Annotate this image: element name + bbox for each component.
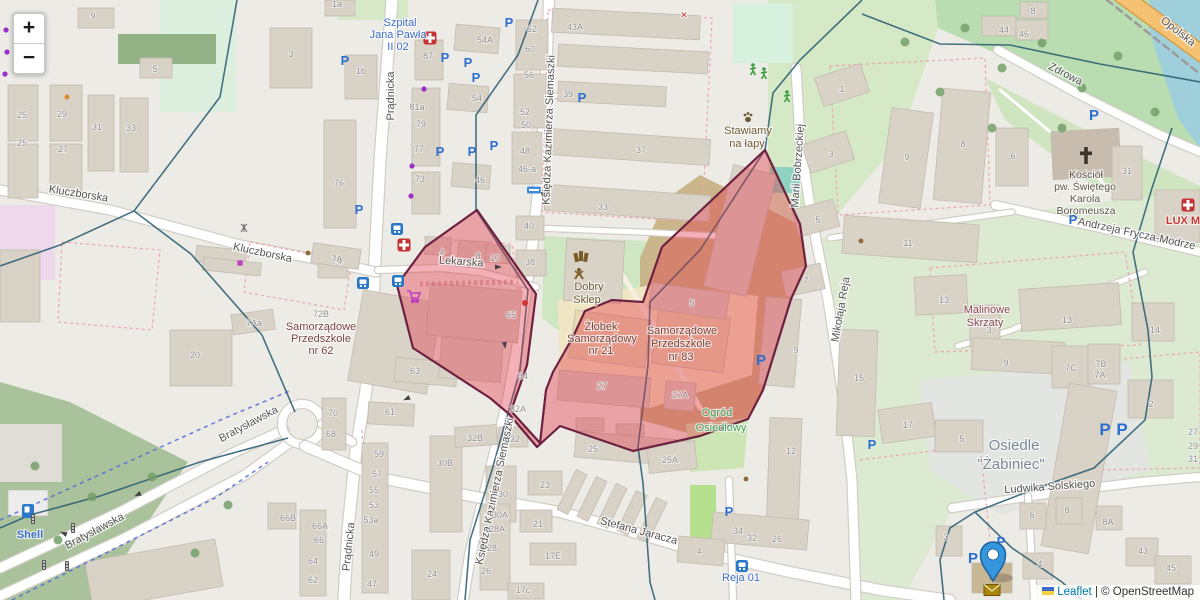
house-number: 7Aa: [246, 318, 262, 328]
red-icon: [522, 300, 528, 306]
house-number: 50: [521, 120, 531, 130]
P-icon: P: [725, 504, 734, 519]
house-number: 49: [369, 549, 379, 559]
house-number: 68: [326, 429, 336, 439]
poi-label: Żłobek: [584, 320, 618, 333]
house-number: 53a: [363, 515, 378, 525]
P-icon: P: [868, 437, 877, 452]
purple-icon: [3, 27, 8, 32]
house-number: 7: [803, 276, 808, 286]
house-number: 44: [999, 25, 1009, 35]
svg-text:P: P: [1116, 420, 1127, 439]
svg-text:P: P: [355, 202, 364, 217]
poi-label: Osiedlowy: [696, 422, 747, 434]
house-number: 13: [939, 295, 949, 305]
house-number: 3: [828, 149, 833, 159]
poi-label: nr 62: [308, 345, 333, 357]
house-number: 9: [904, 152, 909, 162]
house-number: 12: [786, 446, 796, 456]
house-number: 7A: [331, 254, 342, 264]
house-number: 43: [1138, 546, 1148, 556]
house-number: 8: [960, 139, 965, 149]
house-number: 63: [410, 366, 420, 376]
house-number: 34: [518, 371, 528, 381]
P-icon: P: [355, 202, 364, 217]
P-icon: P: [578, 90, 587, 105]
house-number: 9: [1003, 358, 1008, 368]
svg-text:P: P: [505, 15, 514, 30]
house-number: 9: [793, 345, 798, 355]
purple-icon: [408, 193, 413, 198]
medical-icon: [398, 239, 411, 252]
svg-text:P: P: [468, 144, 477, 159]
house-number: 27: [597, 381, 607, 391]
house-number: 57: [372, 469, 382, 479]
blue-tag-icon: [527, 187, 541, 194]
poi-label: na łapy: [729, 138, 765, 150]
poi-label: Malinowe: [964, 304, 1010, 316]
house-number: 54: [472, 93, 482, 103]
house-number: 24: [427, 569, 437, 579]
svg-text:P: P: [1099, 420, 1110, 439]
house-number: 54A: [477, 35, 493, 45]
house-number: 46-a: [518, 164, 536, 174]
poi-label: ✕: [680, 10, 688, 20]
house-number: 26: [481, 566, 491, 576]
poi-label: Samorządowy: [567, 333, 637, 345]
house-number: 70: [328, 408, 338, 418]
house-number: 6: [1010, 151, 1015, 161]
house-number: 28: [487, 543, 497, 553]
P-icon: P: [756, 352, 766, 369]
house-number: 40: [524, 221, 534, 231]
house-number: 8: [1064, 505, 1069, 515]
house-number: 8A: [1102, 517, 1113, 527]
P-icon: P: [1116, 420, 1127, 439]
tl-icon: [71, 523, 75, 533]
house-number: 9: [90, 11, 95, 21]
envelope-icon: [984, 585, 1000, 596]
house-number: 34: [733, 526, 743, 536]
house-number: 52: [520, 107, 530, 117]
house-number: 4: [439, 247, 444, 257]
svg-text:P: P: [472, 70, 481, 85]
bus-icon: [736, 560, 748, 572]
house-number: 28A: [489, 524, 505, 534]
house-number: 15: [854, 373, 864, 383]
house-number: 73: [415, 174, 425, 184]
svg-text:P: P: [490, 138, 499, 153]
zoom-in-button[interactable]: +: [14, 14, 44, 44]
house-number: 5: [959, 434, 964, 444]
osm-credit: © OpenStreetMap: [1101, 586, 1194, 598]
svg-text:P: P: [968, 550, 978, 567]
medical-icon: [1182, 199, 1195, 212]
house-number: 5: [815, 215, 820, 225]
P-icon: P: [472, 70, 481, 85]
street-label: Prądnicka: [385, 71, 397, 121]
house-number: 6: [1029, 510, 1034, 520]
poi-label: Samorządowe: [647, 325, 717, 337]
house-number: 39: [563, 89, 573, 99]
house-number: 8: [1030, 6, 1035, 16]
purple-icon: [4, 49, 9, 54]
house-number: 5: [689, 298, 694, 308]
house-number: 76: [334, 178, 344, 188]
house-number: 13: [1062, 315, 1072, 325]
poi-label: Skrzaty: [967, 317, 1004, 329]
poi-label: Przedszkole: [651, 338, 711, 350]
house-number: 1b: [356, 66, 366, 76]
house-number: 66A: [312, 521, 328, 531]
house-number: 23: [540, 480, 550, 490]
house-number: 27A: [672, 390, 688, 400]
P-icon: P: [436, 144, 445, 159]
svg-text:P: P: [868, 437, 877, 452]
house-number: 60: [525, 44, 535, 54]
house-number: 30A: [492, 510, 508, 520]
poi-label: LUX M: [1166, 215, 1200, 227]
house-number: 65: [506, 310, 516, 320]
house-number: 25: [17, 110, 27, 120]
house-number: 46: [475, 175, 485, 185]
attribution-separator: |: [1095, 586, 1098, 598]
P-icon: P: [1099, 420, 1110, 439]
poi-label: Reja 01: [722, 572, 760, 584]
house-number: 1: [839, 84, 844, 94]
poi-label: nr 21: [588, 345, 613, 357]
zoom-out-button[interactable]: −: [14, 44, 44, 73]
house-number: 3: [943, 532, 948, 542]
poi-label: Stawiamy: [724, 125, 772, 137]
svg-text:P: P: [341, 53, 350, 68]
poi-label: Boromeusza: [1057, 205, 1116, 217]
house-number: 81a: [409, 102, 424, 112]
purple-icon: [409, 163, 414, 168]
svg-text:P: P: [441, 50, 450, 65]
poi-label: Samorządowe: [286, 321, 356, 333]
P-icon: P: [505, 15, 514, 30]
house-number: 53: [369, 500, 379, 510]
P-icon: P: [968, 550, 978, 567]
P-icon: P: [441, 50, 450, 65]
poi-label: "Żabiniec": [977, 455, 1044, 473]
house-number: 62: [308, 575, 318, 585]
house-number: 26: [772, 534, 782, 544]
leaflet-link[interactable]: Leaflet: [1057, 586, 1092, 598]
attribution-bar: Leaflet | © OpenStreetMap: [1034, 585, 1200, 600]
house-number: 48: [520, 146, 530, 156]
poi-label: Shell: [17, 529, 43, 541]
poi-label: Jana Pawła: [370, 29, 428, 41]
poi-label: pw. Świętego: [1054, 180, 1116, 193]
house-number: 1a: [332, 0, 342, 9]
purple-icon: [421, 86, 426, 91]
poi-label: Przedszkole: [291, 333, 351, 345]
purple-icon: [2, 71, 7, 76]
house-number: 7B: [1095, 359, 1106, 369]
house-number: 64: [308, 556, 318, 566]
house-number: 56: [524, 70, 534, 80]
house-number: 31: [92, 122, 102, 132]
orange-icon: [65, 95, 70, 100]
map-canvas[interactable]: PPPPPPPPPPPPPPPPPPPPrądnickaPrądnickaKsi…: [0, 0, 1200, 600]
P-icon: P: [341, 53, 350, 68]
house-number: 72B: [313, 309, 329, 319]
P-icon: P: [464, 55, 473, 70]
svg-text:P: P: [756, 352, 766, 369]
bus-icon: [391, 223, 403, 235]
house-number: 30: [498, 489, 508, 499]
house-number: 59: [374, 449, 384, 459]
house-number: 32A: [510, 404, 526, 414]
leaflet-map: PPPPPPPPPPPPPPPPPPPPrądnickaPrądnickaKsi…: [0, 0, 1200, 600]
house-number: 66: [314, 535, 324, 545]
brown-icon: [859, 239, 864, 244]
bus-icon: [357, 277, 369, 289]
house-number: 32: [747, 533, 757, 543]
magenta-icon: [237, 260, 242, 265]
house-number: 29: [1188, 441, 1198, 451]
house-number: 46: [1019, 29, 1029, 39]
house-number: 27: [1188, 427, 1198, 437]
house-number: 17E: [545, 551, 561, 561]
bus-icon: [392, 275, 404, 287]
house-number: 3: [288, 49, 293, 59]
house-number: 14: [1150, 325, 1160, 335]
house-number: 33: [598, 202, 608, 212]
house-number: 29: [57, 109, 67, 119]
tl-icon: [65, 561, 69, 571]
house-number: 25: [588, 444, 598, 454]
house-number: 43A: [567, 22, 583, 32]
ukraine-flag-icon: [1042, 587, 1054, 595]
house-number: 10: [490, 253, 500, 263]
poi-label: Kościół: [1069, 169, 1104, 181]
house-number: 87: [423, 51, 433, 61]
house-number: 79: [416, 119, 426, 129]
house-number: 11: [903, 238, 912, 248]
tl-icon: [42, 560, 46, 570]
house-number: 7A: [1094, 370, 1105, 380]
poi-label: Ogród: [702, 407, 733, 419]
house-number: 20: [190, 350, 200, 360]
house-number: 62: [527, 24, 537, 34]
house-number: 3: [986, 325, 991, 335]
house-number: 25A: [662, 455, 678, 465]
svg-text:P: P: [436, 144, 445, 159]
svg-text:P: P: [725, 504, 734, 519]
house-number: 2: [1148, 399, 1153, 409]
house-number: 31: [1122, 166, 1132, 176]
poi-label: Karola: [1070, 193, 1101, 205]
house-number: 32: [510, 434, 520, 444]
poi-label: Szpital: [383, 17, 416, 29]
house-number: 21: [533, 519, 543, 529]
house-number: 45: [1166, 563, 1176, 573]
house-number: 17: [903, 420, 913, 430]
house-number: 4: [1037, 559, 1042, 569]
poi-label: Osiedle: [989, 437, 1040, 454]
tl-icon: [31, 514, 35, 524]
house-number: 4: [696, 546, 701, 556]
house-number: 61: [385, 407, 395, 417]
svg-text:P: P: [464, 55, 473, 70]
house-number: 8: [475, 251, 480, 261]
poi-label: Sklep: [573, 294, 601, 306]
poi-label: Dobry: [574, 281, 604, 293]
house-number: 31: [1188, 454, 1198, 464]
house-number: 30B: [437, 458, 453, 468]
poi-label: nr 83: [668, 351, 693, 363]
zoom-control: + −: [12, 12, 46, 75]
brown-icon: [744, 477, 749, 482]
house-number: 27: [58, 144, 68, 154]
house-number: 33: [126, 123, 136, 133]
house-number: 25: [17, 138, 27, 148]
P-icon: P: [490, 138, 499, 153]
P-icon: P: [468, 144, 477, 159]
house-number: 77: [414, 144, 424, 154]
svg-text:P: P: [1089, 107, 1099, 124]
house-number: 38: [525, 257, 535, 267]
house-number: 66B: [280, 513, 296, 523]
house-number: 17c: [516, 585, 531, 595]
poi-label: II 02: [387, 41, 408, 53]
house-number: 7C: [1065, 363, 1077, 373]
brown-icon: [306, 251, 311, 256]
house-number: 37: [636, 145, 646, 155]
house-number: 47: [367, 579, 377, 589]
P-icon: P: [1089, 107, 1099, 124]
svg-text:P: P: [578, 90, 587, 105]
house-number: 32B: [467, 433, 483, 443]
house-number: 55: [369, 485, 379, 495]
house-number: 5: [152, 64, 157, 74]
